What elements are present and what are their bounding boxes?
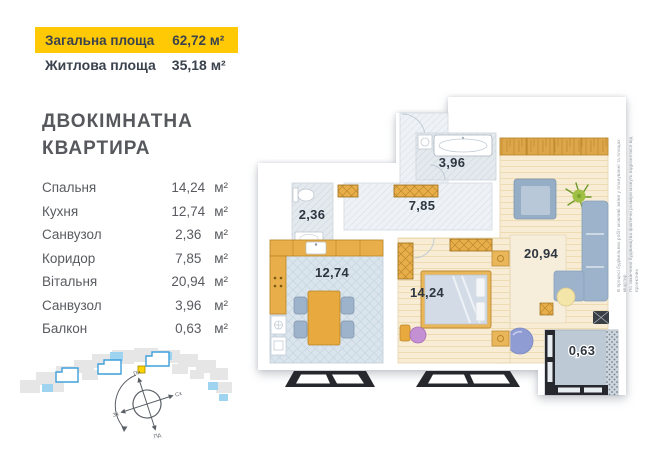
room-living: 20,94 — [500, 138, 608, 363]
bathroom-small-area-label: 2,36 — [299, 207, 326, 222]
room-row-living: Вітальня20,94м² — [42, 270, 228, 294]
room-unit: м² — [214, 227, 228, 242]
room-unit: м² — [214, 204, 228, 219]
room-bedroom: 14,24 — [398, 238, 510, 363]
bedroom-window — [416, 371, 520, 387]
room-name: Балкон — [42, 321, 87, 336]
site-minimap: Пн Пд Зх Сх — [12, 338, 234, 458]
room-name: Коридор — [42, 251, 95, 266]
coffee-table-icon — [557, 288, 575, 306]
room-name: Вітальня — [42, 274, 97, 289]
room-area: 14,24 — [164, 180, 212, 195]
disclaimer-text: В процесі будівельних робіт можливі змін… — [616, 122, 640, 292]
room-name: Спальня — [42, 180, 96, 195]
balcony-area-label: 0,63 — [569, 343, 596, 358]
washing-machine-icon — [418, 135, 432, 149]
room-area: 7,85 — [164, 251, 212, 266]
stove-icon — [271, 316, 286, 334]
room-area: 0,63 — [164, 321, 212, 336]
room-area: 2,36 — [164, 227, 212, 242]
bathtub-icon — [434, 135, 492, 156]
room-kitchen: 12,74 — [270, 240, 383, 363]
room-area: 3,96 — [164, 298, 212, 313]
kitchen-area-label: 12,74 — [315, 265, 350, 280]
room-name: Кухня — [42, 204, 78, 219]
room-unit: м² — [214, 274, 228, 289]
disclaimer-line-2: По закінченні будівництва фактичні розмі… — [628, 122, 640, 292]
room-row-bathroom-small: Санвузол2,36м² — [42, 223, 228, 247]
total-area-value: 62,72 м² — [172, 33, 224, 48]
kitchen-window — [285, 371, 375, 387]
room-name: Санвузол — [42, 227, 102, 242]
floorplan-page: Загальна площа 62,72 м² Житлова площа 35… — [0, 0, 650, 459]
room-area: 20,94 — [164, 274, 212, 289]
ac-unit-icon — [593, 311, 609, 324]
living-area-label: 20,94 — [524, 246, 559, 261]
armchair-icon — [514, 179, 556, 219]
corridor-area-label: 7,85 — [409, 198, 436, 213]
compass-east-label: Сх — [175, 391, 183, 399]
room-row-bedroom: Спальня14,24м² — [42, 176, 228, 200]
room-unit: м² — [214, 251, 228, 266]
room-row-balcony: Балкон0,63м² — [42, 317, 228, 341]
toilet-icon — [293, 188, 314, 202]
bathroom-large-area-label: 3,96 — [439, 155, 466, 170]
wardrobe-icon — [500, 138, 608, 155]
living-cabinet — [540, 303, 553, 315]
room-row-kitchen: Кухня12,74м² — [42, 200, 228, 224]
room-unit: м² — [214, 321, 228, 336]
room-row-corridor: Коридор7,85м² — [42, 247, 228, 271]
room-bathroom-large: 3,96 — [416, 133, 496, 180]
floorplan-drawing: 7,85 2,36 — [248, 83, 638, 415]
total-area-label: Загальна площа — [45, 33, 154, 48]
disclaimer-line-1: В процесі будівельних робіт можливі змін… — [616, 122, 628, 292]
compass-south-label: Пд — [153, 432, 162, 440]
title-line-2: КВАРТИРА — [42, 138, 151, 159]
room-unit: м² — [214, 180, 228, 195]
living-area-row: Житлова площа 35,18 м² — [45, 57, 226, 73]
room-unit: м² — [214, 298, 228, 313]
oven-icon — [271, 337, 286, 355]
room-row-bathroom-large: Санвузол3,96м² — [42, 294, 228, 318]
total-area-banner: Загальна площа 62,72 м² — [35, 27, 238, 53]
bedroom-area-label: 14,24 — [410, 285, 445, 300]
apartment-title: ДВОКІМНАТНА КВАРТИРА — [42, 108, 193, 162]
living-area-value: 35,18 м² — [172, 57, 226, 73]
title-line-1: ДВОКІМНАТНА — [42, 111, 193, 132]
living-area-label: Житлова площа — [45, 57, 156, 73]
room-name: Санвузол — [42, 298, 102, 313]
room-list: Спальня14,24м² Кухня12,74м² Санвузол2,36… — [42, 176, 228, 341]
room-area: 12,74 — [164, 204, 212, 219]
